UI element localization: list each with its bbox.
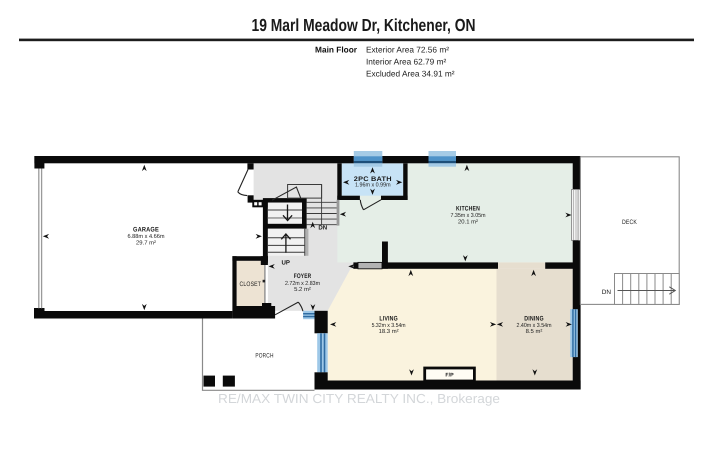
svg-text:Excluded Area 34.91 m²: Excluded Area 34.91 m² [366,69,455,79]
svg-text:6.88m x 4.66m: 6.88m x 4.66m [128,233,165,240]
svg-text:PORCH: PORCH [255,352,273,359]
svg-text:7.35m x 3.05m: 7.35m x 3.05m [451,212,486,219]
svg-text:18.3 m²: 18.3 m² [379,328,399,335]
svg-text:5.32m x 3.54m: 5.32m x 3.54m [372,322,406,329]
svg-text:DN: DN [318,225,327,232]
svg-text:FOYER: FOYER [294,273,312,280]
svg-text:GARAGE: GARAGE [133,227,159,234]
svg-text:Interior Area 62.79 m²: Interior Area 62.79 m² [366,57,446,67]
svg-text:2.72m x 2.83m: 2.72m x 2.83m [285,280,320,287]
svg-text:29.7 m²: 29.7 m² [136,240,156,247]
svg-text:LIVING: LIVING [379,316,398,323]
svg-text:8.5 m²: 8.5 m² [526,328,543,335]
svg-text:KITCHEN: KITCHEN [456,205,480,212]
svg-text:2.40m x 3.54m: 2.40m x 3.54m [517,322,552,329]
svg-text:Exterior Area 72.56 m²: Exterior Area 72.56 m² [366,45,449,55]
svg-text:DINING: DINING [524,316,544,323]
svg-text:F/P: F/P [445,373,454,379]
svg-text:RE/MAX TWIN CITY REALTY INC.,: RE/MAX TWIN CITY REALTY INC., Brokerage [218,391,500,406]
svg-text:5.2 m²: 5.2 m² [294,286,311,293]
svg-text:1.96m x 0.99m: 1.96m x 0.99m [355,182,391,189]
svg-text:Main Floor: Main Floor [315,45,358,55]
svg-text:19 Marl Meadow Dr, Kitchener,: 19 Marl Meadow Dr, Kitchener, ON [252,15,476,35]
svg-text:CLOSET: CLOSET [240,281,262,288]
svg-text:DECK: DECK [622,219,637,226]
svg-text:DN: DN [602,289,612,296]
svg-text:UP: UP [281,259,289,266]
svg-text:20.1 m²: 20.1 m² [458,219,478,226]
